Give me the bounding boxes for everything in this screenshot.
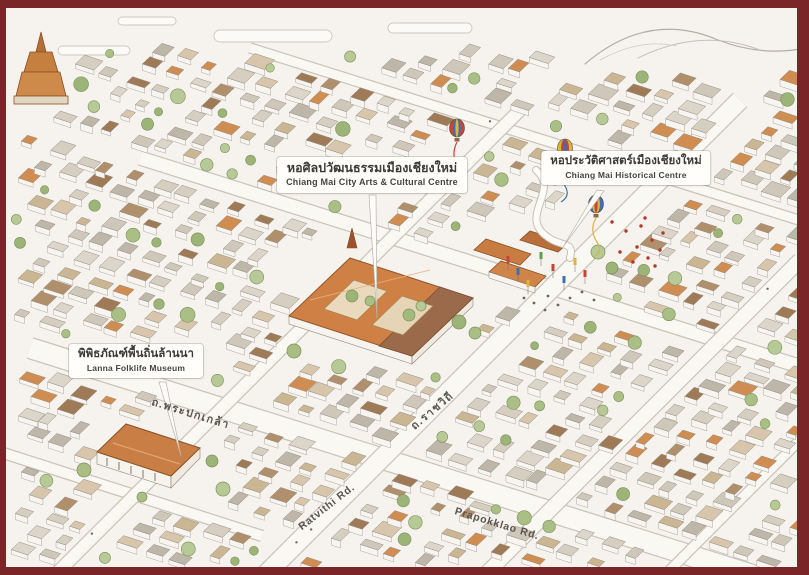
label-cultural-centre: หอศิลปวัฒนธรรมเมืองเชียงใหม่ Chiang Mai … <box>277 157 467 193</box>
historical-centre-english-name: Chiang Mai Historical Centre <box>550 170 701 181</box>
historical-centre-thai-name: หอประวัติศาสตร์เมืองเชียงใหม่ <box>550 154 701 170</box>
framed-map: หอศิลปวัฒนธรรมเมืองเชียงใหม่ Chiang Mai … <box>0 0 809 575</box>
map-illustration <box>0 0 809 575</box>
cultural-centre-thai-name: หอศิลปวัฒนธรรมเมืองเชียงใหม่ <box>286 160 458 177</box>
label-historical-centre: หอประวัติศาสตร์เมืองเชียงใหม่ Chiang Mai… <box>541 151 710 185</box>
cultural-centre-english-name: Chiang Mai City Arts & Cultural Centre <box>286 177 458 189</box>
folklife-museum-english-name: Lanna Folklife Museum <box>78 363 194 374</box>
folklife-museum-thai-name: พิพิธภัณฑ์พื้นถิ่นล้านนา <box>78 347 194 363</box>
label-folklife-museum: พิพิธภัณฑ์พื้นถิ่นล้านนา Lanna Folklife … <box>69 344 203 378</box>
